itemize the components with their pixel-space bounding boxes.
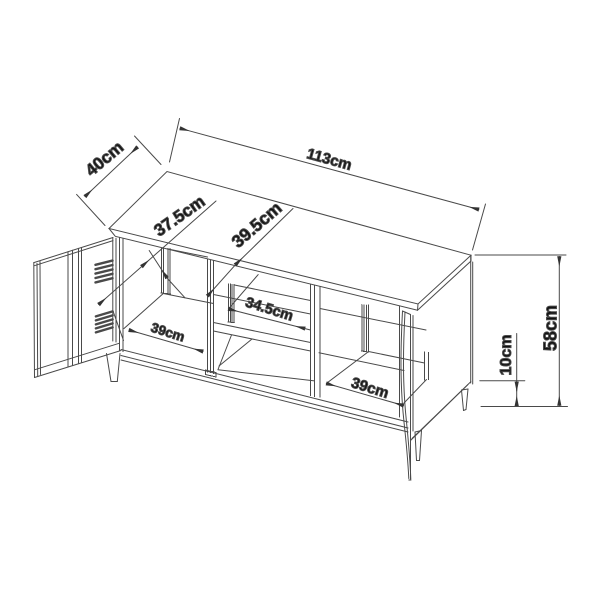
svg-text:58cm: 58cm: [541, 305, 561, 351]
svg-text:113cm: 113cm: [305, 145, 354, 174]
svg-text:40cm: 40cm: [82, 138, 128, 181]
svg-text:39cm: 39cm: [349, 374, 391, 402]
svg-text:34.5cm: 34.5cm: [243, 295, 295, 325]
svg-text:10cm: 10cm: [498, 335, 515, 376]
